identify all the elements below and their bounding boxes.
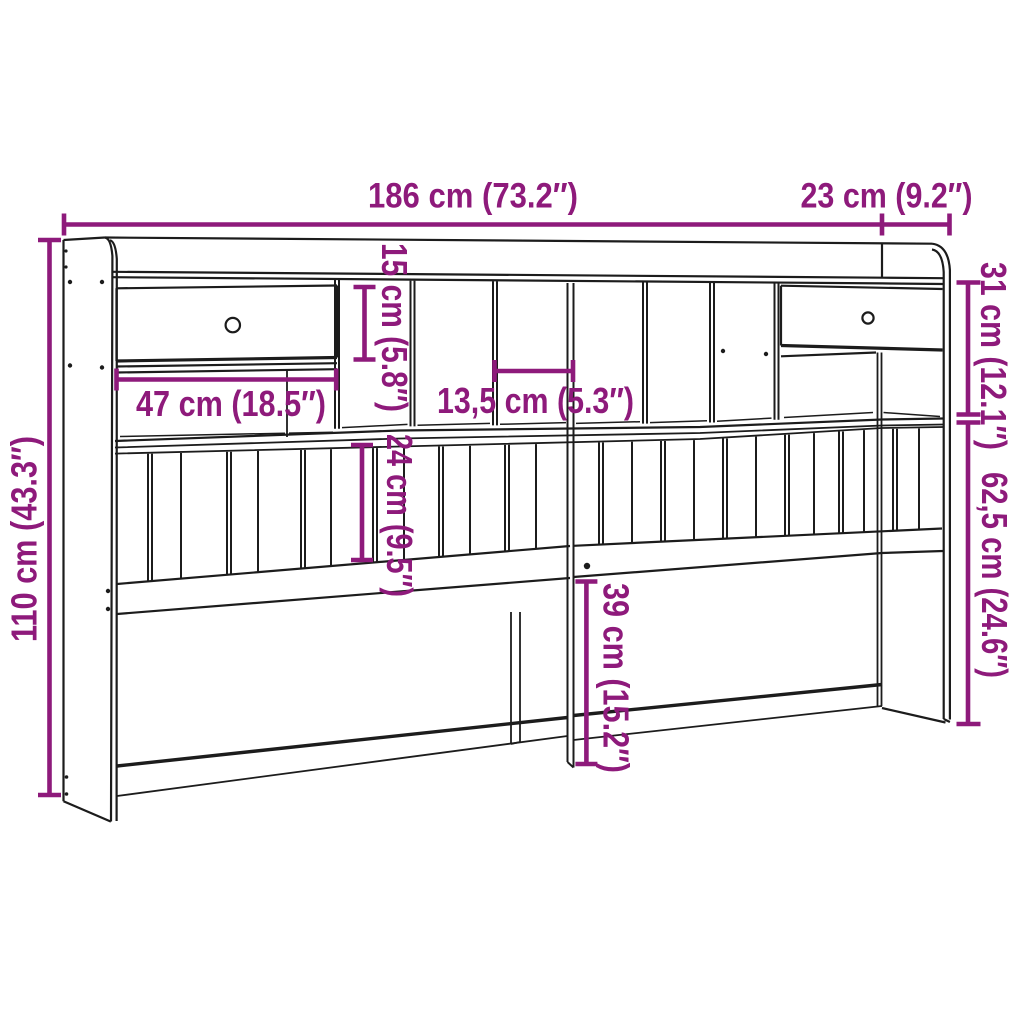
- svg-text:23 cm (9.2″): 23 cm (9.2″): [801, 177, 973, 216]
- svg-text:47 cm (18.5″): 47 cm (18.5″): [136, 383, 326, 424]
- svg-text:110 cm (43.3″): 110 cm (43.3″): [4, 436, 45, 642]
- svg-text:39 cm (15.2″): 39 cm (15.2″): [596, 583, 637, 773]
- svg-text:186 cm (73.2″): 186 cm (73.2″): [368, 177, 578, 216]
- svg-text:24 cm (9.5″): 24 cm (9.5″): [379, 434, 420, 597]
- svg-text:62,5 cm (24.6″): 62,5 cm (24.6″): [974, 472, 1015, 678]
- svg-text:13,5 cm (5.3″): 13,5 cm (5.3″): [437, 380, 634, 421]
- svg-text:15 cm (5.8″): 15 cm (5.8″): [374, 243, 415, 412]
